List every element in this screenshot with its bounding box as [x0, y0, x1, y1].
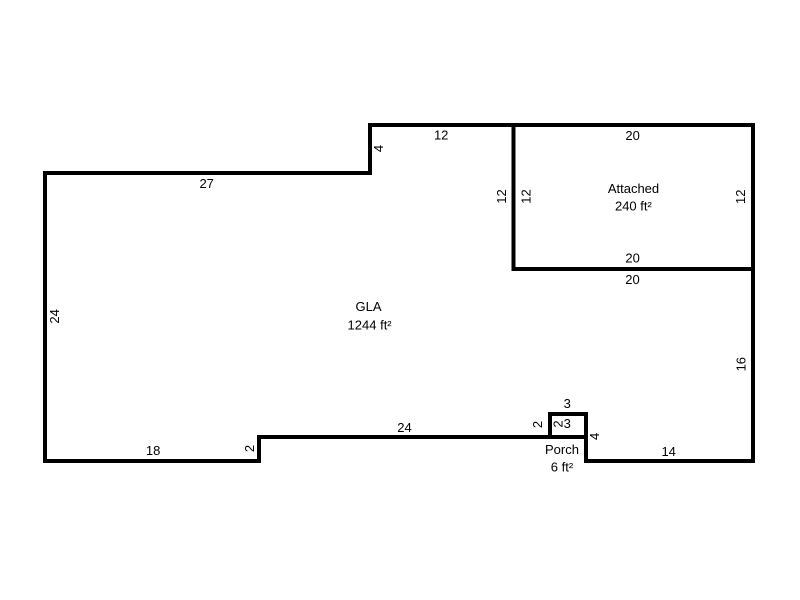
svg-text:3: 3: [564, 416, 571, 431]
svg-text:24: 24: [47, 309, 62, 323]
svg-text:6 ft²: 6 ft²: [551, 459, 574, 474]
svg-text:240 ft²: 240 ft²: [615, 199, 653, 214]
svg-text:16: 16: [734, 357, 749, 371]
svg-text:1244 ft²: 1244 ft²: [348, 317, 393, 332]
svg-text:12: 12: [434, 128, 448, 143]
svg-text:4: 4: [371, 145, 386, 152]
svg-text:20: 20: [625, 251, 639, 266]
svg-text:Attached: Attached: [608, 181, 659, 196]
svg-text:12: 12: [494, 189, 509, 203]
svg-text:GLA: GLA: [355, 299, 381, 314]
svg-text:3: 3: [564, 396, 571, 411]
svg-text:2: 2: [242, 445, 257, 452]
svg-text:20: 20: [625, 128, 639, 143]
svg-text:2: 2: [530, 421, 545, 428]
svg-text:12: 12: [519, 189, 534, 203]
svg-text:14: 14: [661, 444, 675, 459]
svg-text:20: 20: [625, 272, 639, 287]
svg-text:18: 18: [146, 443, 160, 458]
svg-text:Porch: Porch: [545, 442, 579, 457]
svg-text:24: 24: [397, 420, 411, 435]
svg-text:4: 4: [587, 433, 602, 440]
svg-text:12: 12: [733, 190, 748, 204]
svg-text:27: 27: [199, 176, 213, 191]
